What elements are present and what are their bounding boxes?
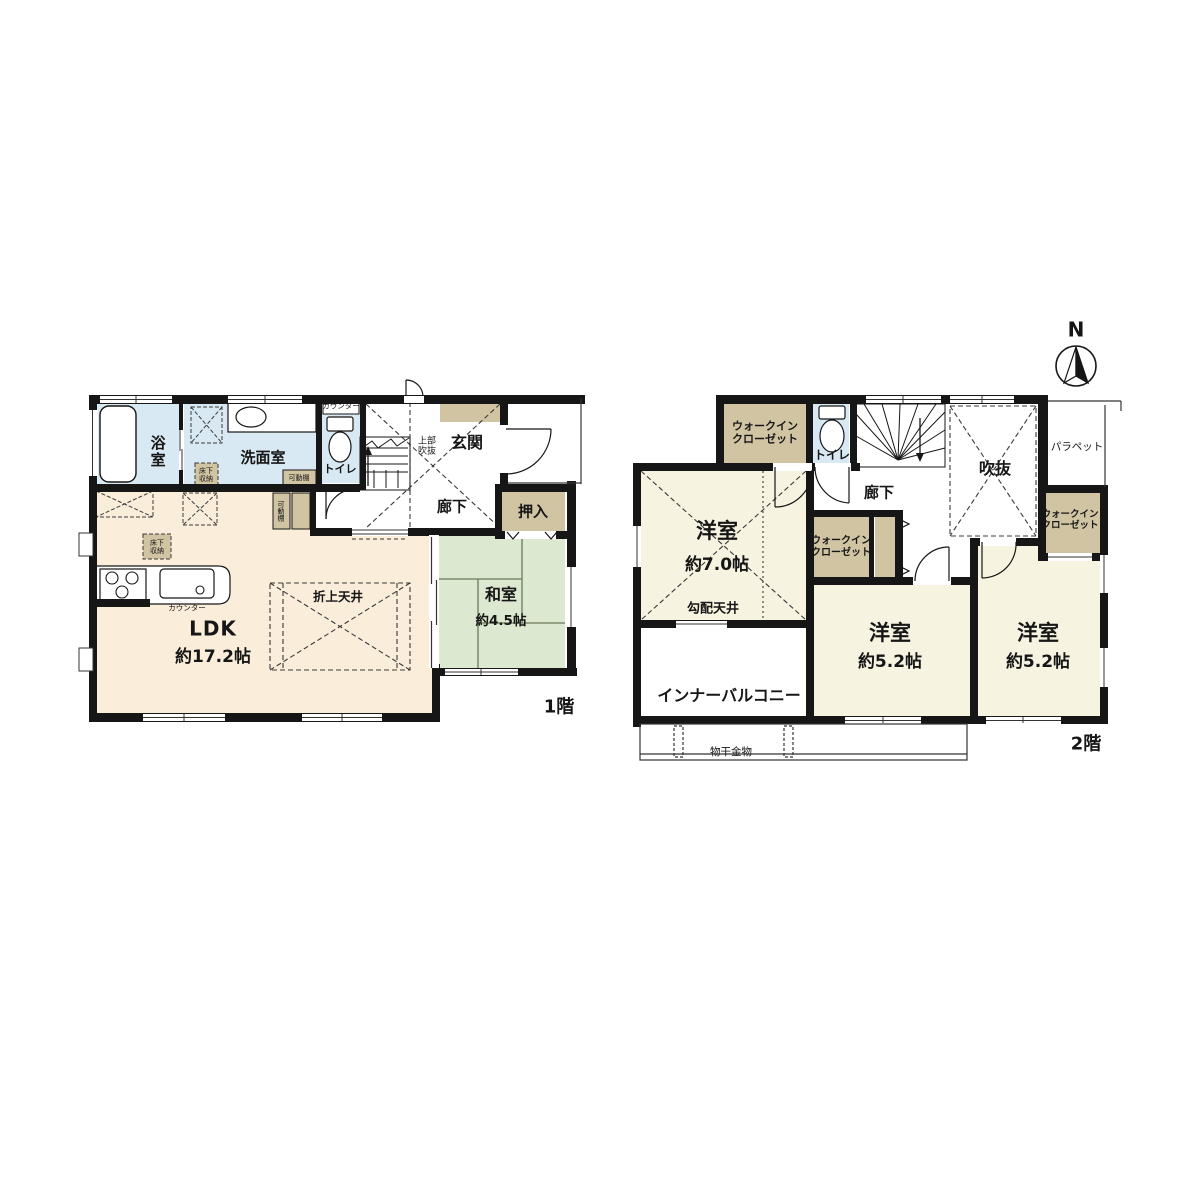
- bath-tub: [100, 406, 136, 482]
- label-line: クローゼット: [1041, 521, 1098, 532]
- label-hallway1: 廊下: [437, 498, 467, 515]
- toilet2-door-arc: [815, 467, 849, 503]
- label-line: 収納: [199, 475, 213, 483]
- shutter-box: [79, 533, 93, 556]
- label-bedroom3: 洋室: [1017, 621, 1059, 645]
- toilet1-door-arc: [326, 489, 355, 519]
- label-wic3: ウォークイン クローゼット: [811, 536, 871, 559]
- label-bath: 浴室: [148, 435, 165, 469]
- label-wic1: ウォークイン クローゼット: [732, 420, 798, 445]
- label-upper-void: 上部 吹抜: [418, 437, 436, 458]
- small-closet: [875, 517, 895, 577]
- label-shelf-hall: 可動棚: [277, 501, 285, 522]
- floor2-plan: [633, 395, 1121, 760]
- hall-storage-box: [292, 493, 310, 529]
- label-underfloor-ldk: 床下 収納: [150, 539, 164, 555]
- label-line: 吹抜: [418, 447, 436, 457]
- bedroom2-door-arc: [915, 547, 949, 581]
- label-line: ウォークイン: [811, 536, 871, 548]
- label-washitsu-size: 約4.5帖: [476, 614, 527, 630]
- label-floor1: 1階: [544, 698, 575, 719]
- label-toilet1: トイレ: [324, 464, 357, 477]
- label-line: 収納: [150, 547, 164, 555]
- label-line: ウォークイン: [732, 420, 798, 433]
- toilet2-fixture: [819, 406, 845, 452]
- label-line: 床下: [199, 467, 213, 475]
- stairs-1f: [360, 437, 410, 490]
- label-void: 吹抜: [979, 460, 1011, 478]
- label-washroom: 洗面室: [240, 449, 285, 466]
- kitchen-counter: [93, 566, 230, 607]
- laundry-hanger: [674, 726, 683, 757]
- entrance-door-arc: [506, 429, 551, 474]
- label-toilet2: トイレ: [814, 449, 850, 463]
- compass-needle-east: [1076, 347, 1088, 383]
- floorplan-drawing: [0, 0, 1200, 1200]
- label-washitsu: 和室: [485, 586, 517, 604]
- stove: [100, 569, 146, 601]
- label-sloped-ceiling: 勾配天井: [687, 603, 739, 618]
- stairs-2f: [856, 404, 945, 467]
- sink: [160, 569, 214, 598]
- label-bedroom1: 洋室: [696, 519, 738, 543]
- label-line: クローゼット: [732, 433, 798, 446]
- label-floor2: 2階: [1071, 735, 1102, 756]
- room-bedroom2: [814, 585, 970, 716]
- label-parapet: パラペット: [1051, 441, 1104, 453]
- label-kitchen-counter: カウンター: [168, 605, 206, 614]
- label-ldk: LDK: [189, 618, 237, 641]
- label-bedroom2: 洋室: [869, 621, 911, 645]
- label-hallway2: 廊下: [864, 484, 894, 501]
- label-compass-north: N: [1068, 319, 1085, 342]
- label-underfloor-washroom: 床下 収納: [199, 467, 213, 483]
- shutter-box: [79, 648, 93, 671]
- label-coffered-ceiling: 折上天井: [313, 590, 363, 604]
- label-laundry-hardware: 物干金物: [710, 746, 752, 758]
- porch-outline: [508, 398, 581, 484]
- backdoor-arc: [406, 380, 423, 396]
- label-line: クローゼット: [811, 547, 871, 559]
- balcony-eaves: [640, 724, 967, 760]
- compass-needle-west: [1064, 347, 1076, 383]
- label-toilet1-counter: カウンター: [322, 403, 360, 412]
- vanity-basin: [228, 401, 316, 432]
- label-bedroom1-size: 約7.0帖: [685, 556, 749, 576]
- label-line: 上部: [418, 437, 436, 447]
- compass: [1056, 346, 1096, 386]
- label-shelf-washroom: 可動棚: [289, 474, 310, 482]
- label-bedroom2-size: 約5.2帖: [858, 653, 922, 673]
- label-line: 床下: [150, 539, 164, 547]
- label-oshiire: 押入: [518, 503, 548, 520]
- label-bedroom3-size: 約5.2帖: [1006, 653, 1070, 673]
- label-inner-balcony: インナーバルコニー: [657, 687, 801, 705]
- floorplan-page: 浴室 洗面室 トイレ カウンター 可動棚 可動棚 床下 収納 床下 収納 玄関 …: [0, 0, 1200, 1200]
- label-ldk-size: 約17.2帖: [175, 648, 251, 668]
- label-wic2: ウォークイン クローゼット: [1041, 510, 1098, 532]
- label-entrance: 玄関: [451, 434, 483, 452]
- laundry-hanger: [784, 726, 793, 757]
